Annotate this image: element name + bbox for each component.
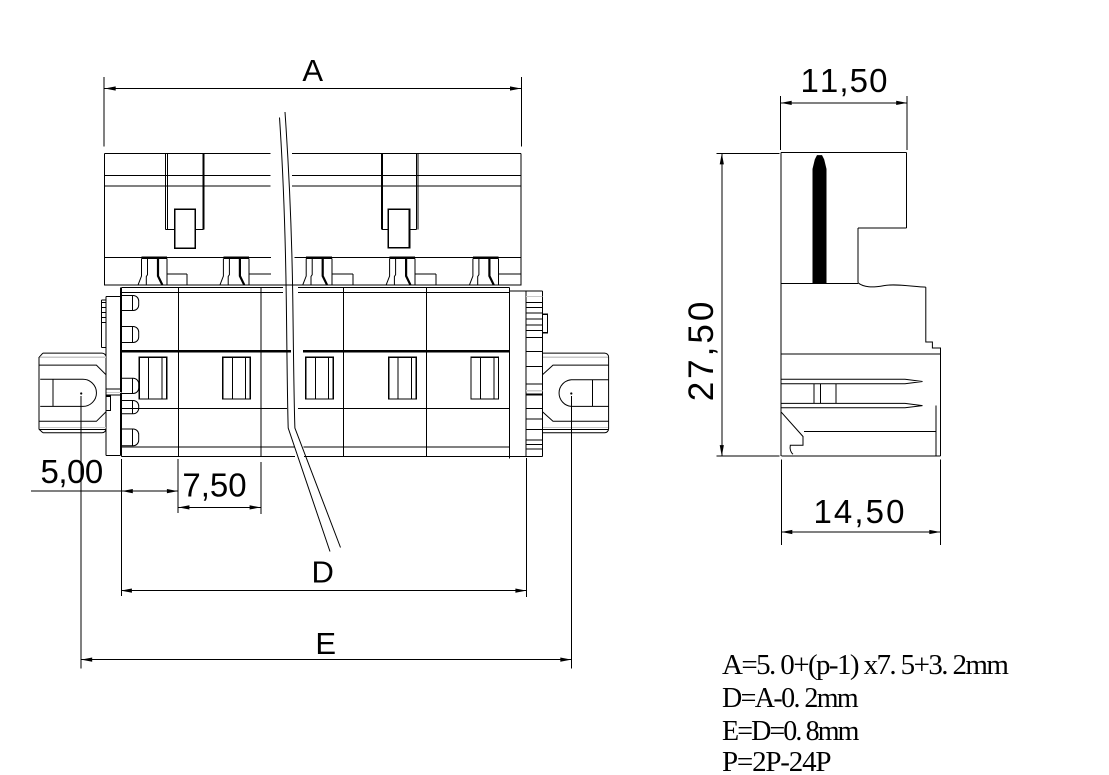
svg-text:14,50: 14,50	[813, 493, 906, 530]
svg-text:7,50: 7,50	[182, 467, 246, 504]
svg-text:D=A-0. 2mm: D=A-0. 2mm	[722, 683, 859, 714]
svg-text:A: A	[302, 53, 323, 88]
svg-text:E=D=0. 8mm: E=D=0. 8mm	[722, 716, 860, 747]
svg-text:D: D	[312, 555, 334, 590]
svg-text:11,50: 11,50	[800, 62, 888, 99]
svg-text:27,50: 27,50	[682, 299, 721, 402]
svg-text:A=5. 0+(p-1) x7. 5+3. 2mm: A=5. 0+(p-1) x7. 5+3. 2mm	[722, 649, 1009, 681]
svg-text:E: E	[315, 626, 336, 661]
svg-text:5,00: 5,00	[40, 453, 102, 490]
svg-text:P=2P-24P: P=2P-24P	[722, 746, 830, 775]
